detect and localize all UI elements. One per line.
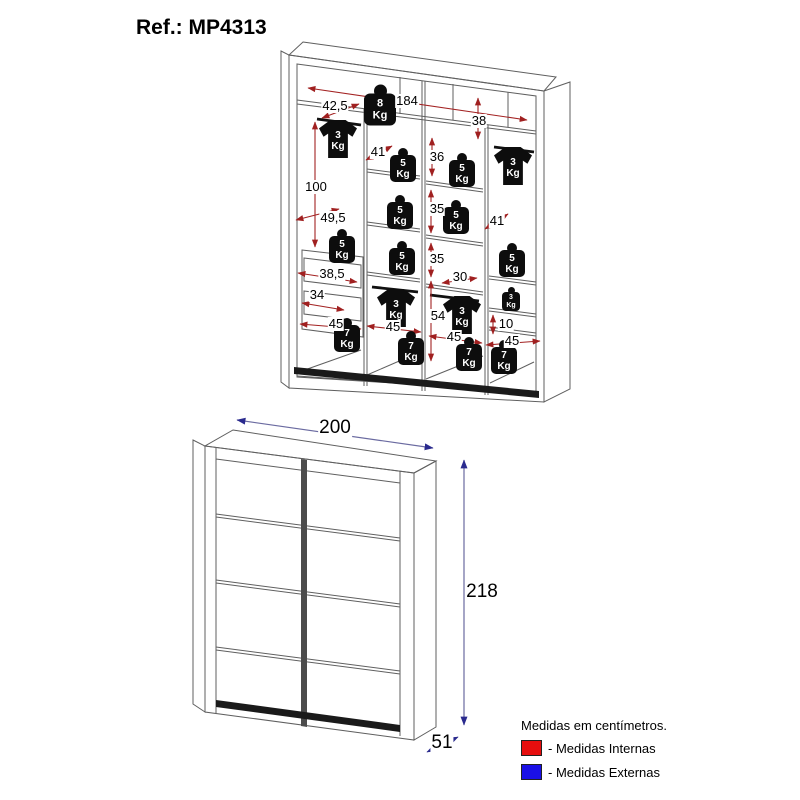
exterior-wardrobe-outline: [193, 430, 436, 740]
interior-dim-label: 45: [504, 334, 520, 348]
weight-icon: 5Kg: [387, 195, 413, 229]
weight-icon: 5Kg: [449, 153, 475, 187]
technical-drawing-page: Ref.: MP4313 42,5 184 38 41 36 100 49,5 …: [0, 0, 800, 800]
exterior-base-track: [216, 700, 400, 732]
diagram-linework: [0, 0, 800, 800]
interior-dim-label: 34: [309, 288, 325, 302]
interior-dim-label: 38,5: [318, 267, 345, 281]
interior-dim-label: 54: [430, 309, 446, 323]
sliding-door-divider: [301, 459, 307, 727]
interior-dim-label: 41: [370, 145, 386, 159]
interior-dim-label: 100: [304, 180, 328, 194]
interior-dim-label: 41: [489, 214, 505, 228]
interior-dim-label: 49,5: [319, 211, 346, 225]
weight-icon: 5Kg: [499, 243, 525, 277]
legend-external-label: - Medidas Externas: [548, 765, 660, 780]
weight-icon: 8Kg: [364, 85, 396, 126]
legend-note: Medidas em centímetros.: [521, 718, 667, 733]
interior-dim-label: 10: [498, 317, 514, 331]
weight-icon: 5Kg: [329, 229, 355, 263]
legend-internal-label: - Medidas Internas: [548, 741, 656, 756]
external-dimension-arrows: [237, 420, 464, 752]
weight-icon: 7Kg: [398, 331, 424, 365]
internal-measures-swatch: [521, 740, 542, 756]
external-measures-swatch: [521, 764, 542, 780]
interior-dim-label: 30: [452, 270, 468, 284]
interior-dim-label: 38: [471, 114, 487, 128]
weight-icon: 3Kg: [502, 287, 520, 311]
weight-icon: 5Kg: [389, 241, 415, 275]
interior-dim-label: 45: [385, 320, 401, 334]
exterior-dim-label: 200: [318, 418, 352, 438]
interior-dim-label: 36: [429, 150, 445, 164]
interior-dim-label: 45: [328, 317, 344, 331]
weight-icon: 5Kg: [390, 148, 416, 182]
legend-row-internal: - Medidas Internas: [521, 740, 667, 756]
interior-dim-label: 45: [446, 330, 462, 344]
interior-dim-label: 35: [429, 252, 445, 266]
interior-dim-label: 42,5: [321, 99, 348, 113]
exterior-dim-label: 218: [465, 582, 499, 602]
legend: Medidas em centímetros. - Medidas Intern…: [521, 718, 667, 788]
exterior-dim-label: 51: [430, 733, 453, 753]
legend-row-external: - Medidas Externas: [521, 764, 667, 780]
weight-icon: 5Kg: [443, 200, 469, 234]
page-title: Ref.: MP4313: [136, 16, 267, 40]
interior-dim-label: 184: [395, 94, 419, 108]
interior-dim-label: 35: [429, 202, 445, 216]
